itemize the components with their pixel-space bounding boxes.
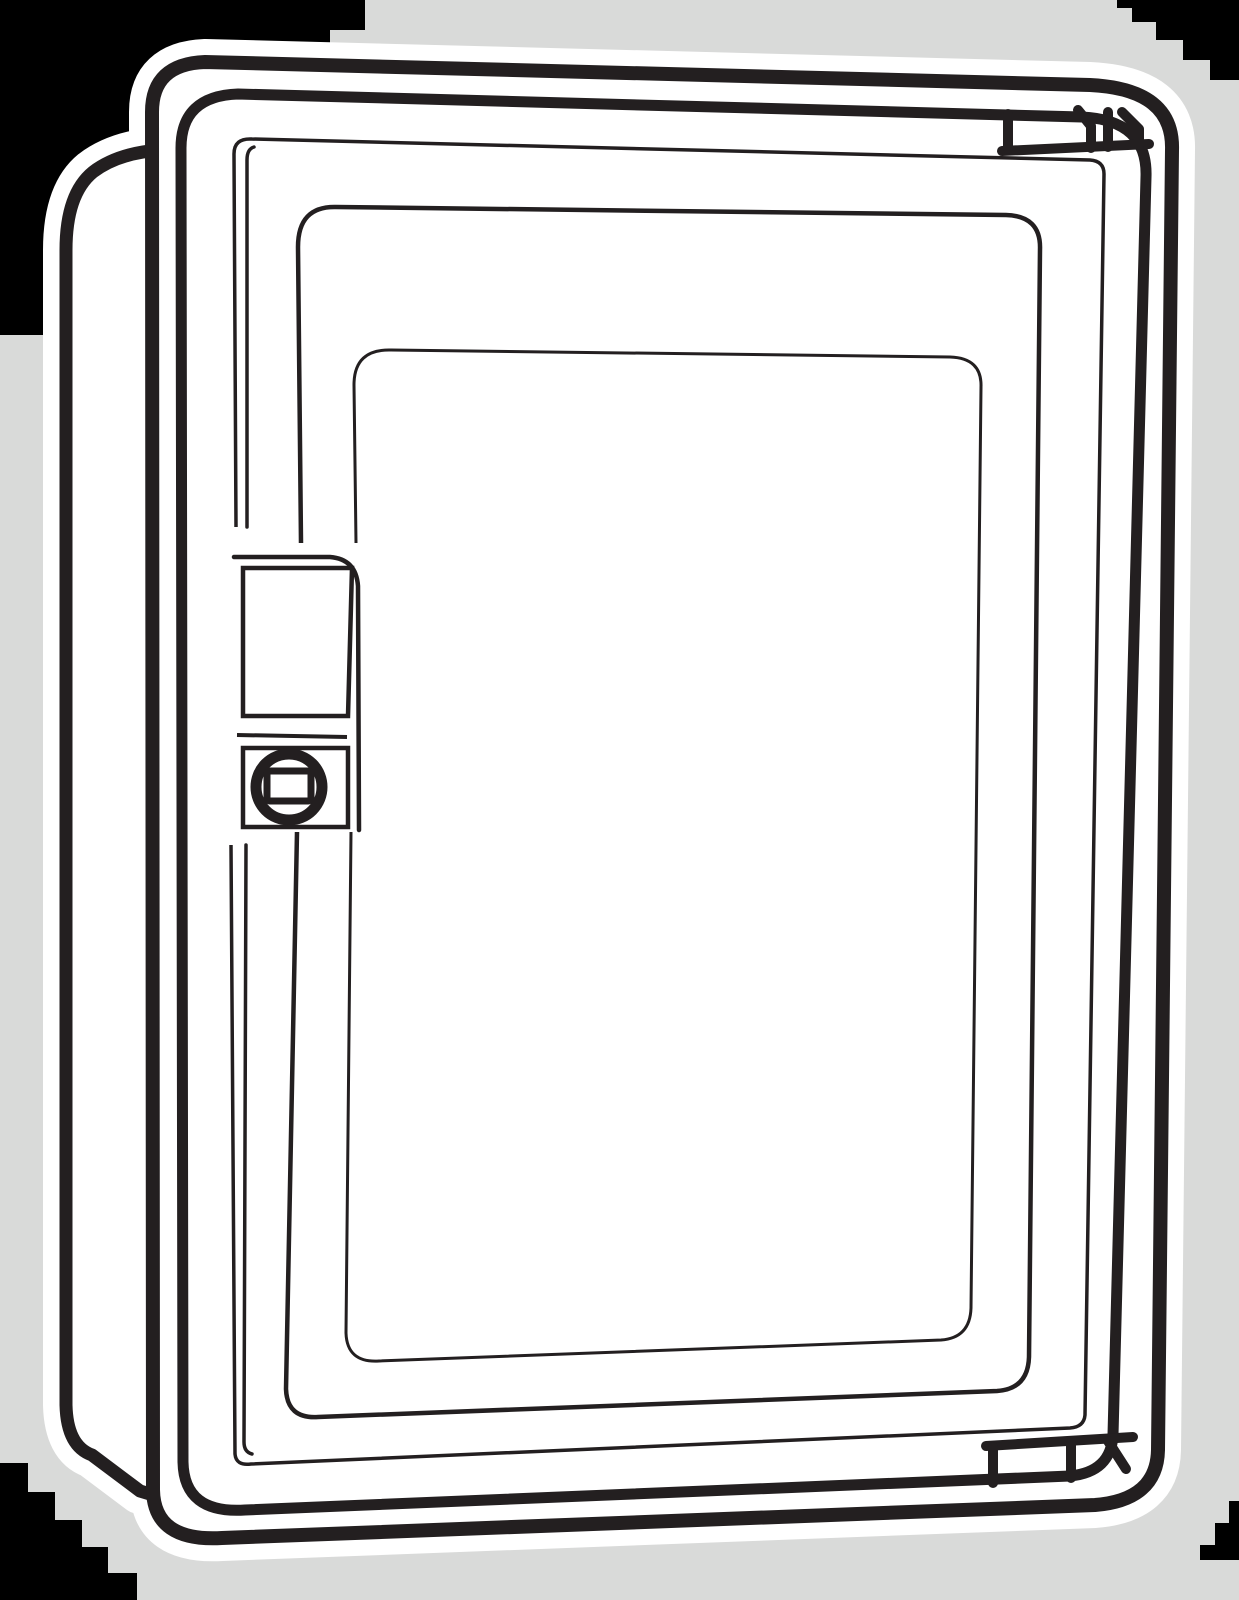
top-hinge-bar: [1002, 144, 1149, 151]
latch-assembly: [234, 557, 359, 830]
latch-plate: [243, 568, 352, 716]
enclosure-illustration: Surface-mounted electrical enclosure wit…: [0, 0, 1239, 1600]
illustration-page: Surface-mounted electrical enclosure wit…: [0, 0, 1239, 1600]
latch-divider-line: [237, 735, 347, 737]
